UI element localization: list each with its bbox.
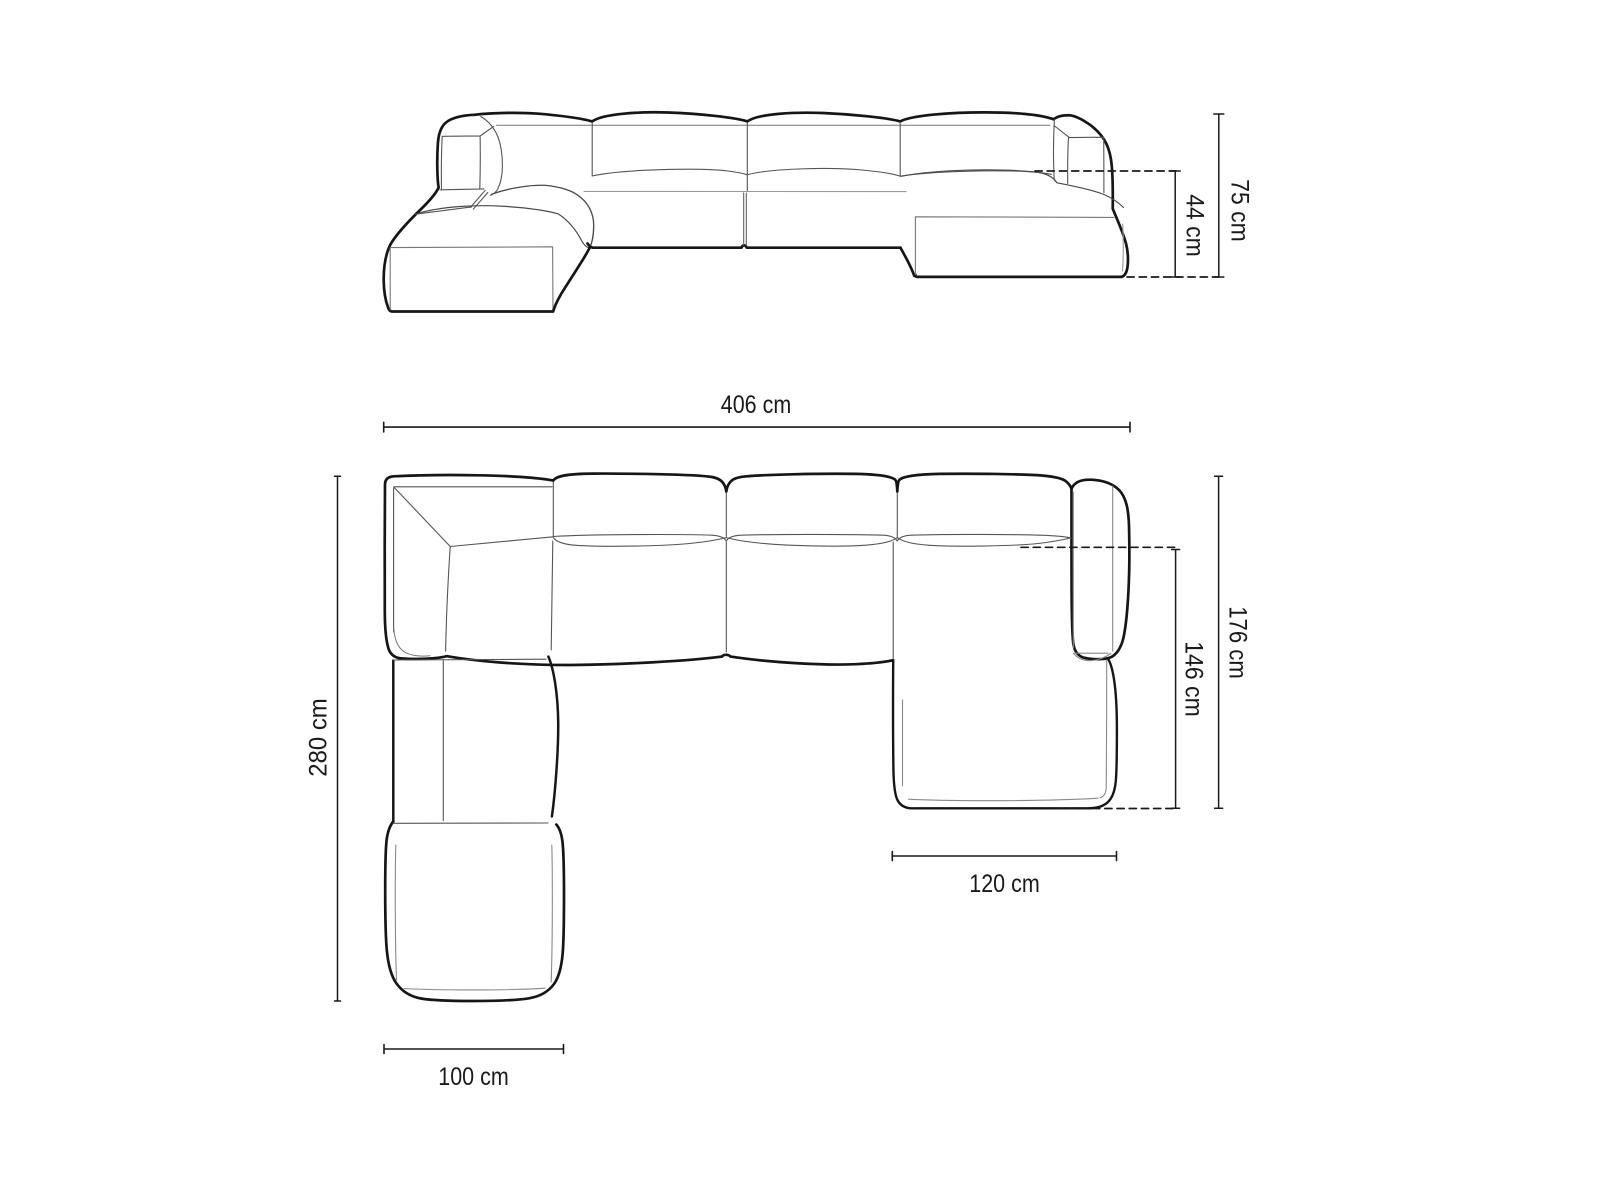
svg-text:120 cm: 120 cm — [969, 870, 1040, 898]
svg-text:100 cm: 100 cm — [438, 1063, 509, 1091]
svg-text:176 cm: 176 cm — [1224, 606, 1252, 679]
svg-text:146 cm: 146 cm — [1180, 641, 1208, 717]
svg-text:406 cm: 406 cm — [721, 391, 792, 419]
svg-text:44 cm: 44 cm — [1181, 194, 1209, 257]
svg-text:75 cm: 75 cm — [1226, 179, 1254, 242]
svg-text:280 cm: 280 cm — [305, 698, 333, 777]
